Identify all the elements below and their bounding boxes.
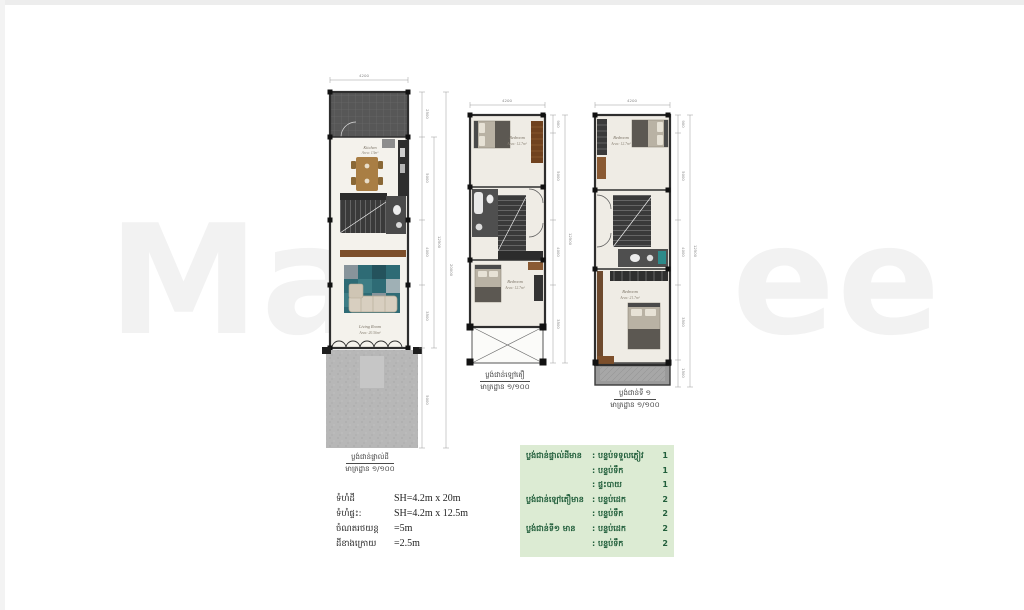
watermark-right: ee bbox=[732, 205, 942, 357]
room-summary-table: ប្លង់ជាន់ផ្ទាល់ដីមាន : បន្ទប់ទទួលភ្ញៀវ 1… bbox=[520, 445, 674, 557]
svg-text:4000: 4000 bbox=[556, 247, 561, 257]
svg-text:2500: 2500 bbox=[425, 109, 430, 119]
ground-floor-plan: 4200 Kitchen Area: 13m² bbox=[320, 60, 455, 490]
room-item: : បន្ទប់ដេក bbox=[592, 523, 658, 535]
svg-text:900: 900 bbox=[681, 120, 686, 128]
bed bbox=[474, 121, 510, 148]
room-count: 2 bbox=[658, 495, 668, 504]
svg-text:Bedroom: Bedroom bbox=[509, 135, 525, 140]
tv-console bbox=[340, 250, 406, 257]
svg-text:Bedroom: Bedroom bbox=[507, 279, 523, 284]
bathroom bbox=[618, 249, 668, 267]
table-row: : ផ្ទះបាយ 1 bbox=[526, 479, 668, 494]
svg-text:Living Room: Living Room bbox=[358, 324, 381, 329]
bed bbox=[475, 265, 501, 302]
svg-text:Area: 12.7m²: Area: 12.7m² bbox=[610, 142, 631, 146]
room-item: : ផ្ទះបាយ bbox=[592, 479, 658, 491]
table-row: ប្លង់ជាន់ទី១ មាន : បន្ទប់ដេក 2 bbox=[526, 523, 668, 538]
dimension-right bbox=[419, 92, 449, 448]
svg-text:Area: 13m²: Area: 13m² bbox=[361, 151, 380, 155]
under-stair-bathroom bbox=[386, 196, 406, 234]
room-item: : បន្ទប់ដេក bbox=[592, 494, 658, 506]
table-row: ប្លង់ជាន់ឡៅតឿមាន : បន្ទប់ដេក 2 bbox=[526, 494, 668, 509]
spec-value: SH=4.2m x 20m bbox=[394, 493, 460, 504]
svg-text:3500: 3500 bbox=[556, 319, 561, 329]
svg-text:20000: 20000 bbox=[449, 264, 454, 277]
dimension-top: 4200 bbox=[595, 98, 670, 108]
room-count: 1 bbox=[658, 466, 668, 475]
room-item: : បន្ទប់ទឹក bbox=[592, 465, 658, 477]
svg-text:5000: 5000 bbox=[425, 173, 430, 183]
table-row: ប្លង់ជាន់ផ្ទាល់ដីមាន : បន្ទប់ទទួលភ្ញៀវ 1 bbox=[526, 450, 668, 465]
table-row: : បន្ទប់ទឹក 2 bbox=[526, 538, 668, 553]
svg-text:1500: 1500 bbox=[681, 368, 686, 378]
room-item: : បន្ទប់ទឹក bbox=[592, 538, 658, 550]
svg-text:Bedroom: Bedroom bbox=[613, 135, 629, 140]
svg-text:Kitchen: Kitchen bbox=[362, 145, 376, 150]
dimensions-spec-block: ទំហំដី SH=4.2m x 20m ទំហំផ្ទះ: SH=4.2m x… bbox=[336, 493, 516, 553]
svg-text:Area: 12.7m²: Area: 12.7m² bbox=[506, 142, 527, 146]
cabinet bbox=[534, 275, 543, 301]
room-item: : បន្ទប់ទឹក bbox=[592, 508, 658, 520]
void-open-below bbox=[472, 327, 543, 363]
svg-text:12500: 12500 bbox=[437, 236, 442, 249]
dimension-top: 4200 bbox=[330, 73, 408, 83]
wardrobe bbox=[531, 121, 543, 163]
room-item: : បន្ទប់ទទួលភ្ញៀវ bbox=[592, 450, 658, 462]
svg-text:5000: 5000 bbox=[556, 171, 561, 181]
first-floor-caption: ប្លង់ជាន់ទី ១ មាត្រដ្ឋាន ១/១០០ bbox=[585, 389, 685, 411]
spec-label: ដីខាងក្រោយ bbox=[336, 539, 394, 551]
first-floor-plan: 4200 Bedroom Area: 12.7m² Bedroom Area: … bbox=[580, 95, 715, 430]
spec-label: ចំណតរថយន្ត bbox=[336, 524, 394, 536]
wardrobe bbox=[610, 271, 668, 281]
mezzanine-caption: ប្លង់ជាន់ឡៅតឿ មាត្រដ្ឋាន ១/១០០ bbox=[455, 371, 555, 393]
room-count: 2 bbox=[658, 524, 668, 533]
svg-text:4000: 4000 bbox=[425, 247, 430, 257]
table-row: : បន្ទប់ទឹក 2 bbox=[526, 508, 668, 523]
spec-label: ទំហំផ្ទះ: bbox=[336, 509, 394, 521]
accent-wall bbox=[597, 271, 603, 357]
dimension-top: 4200 bbox=[470, 98, 545, 108]
svg-text:4200: 4200 bbox=[627, 98, 637, 103]
table-row: : បន្ទប់ទឹក 1 bbox=[526, 465, 668, 480]
svg-text:Area: 21.7m²: Area: 21.7m² bbox=[619, 296, 640, 300]
spec-value: =5m bbox=[394, 523, 412, 534]
stairs bbox=[340, 200, 386, 233]
svg-text:4200: 4200 bbox=[502, 98, 512, 103]
svg-text:12500: 12500 bbox=[568, 233, 573, 246]
floor-label: ប្លង់ជាន់ផ្ទាល់ដីមាន bbox=[526, 450, 592, 462]
ground-floor-caption: ប្លង់ជាន់ផ្ទាល់ដី មាត្រដ្ឋាន ១/១០០ bbox=[320, 453, 420, 475]
svg-text:12500: 12500 bbox=[693, 245, 698, 258]
fridge bbox=[382, 139, 395, 148]
spec-value: SH=4.2m x 12.5m bbox=[394, 508, 468, 519]
svg-text:Area: 20.56m²: Area: 20.56m² bbox=[358, 331, 381, 335]
page-edge-left bbox=[0, 0, 5, 610]
spec-row-parking: ចំណតរថយន្ត =5m bbox=[336, 523, 516, 538]
stairs bbox=[613, 195, 651, 247]
svg-text:900: 900 bbox=[556, 120, 561, 128]
room-count: 1 bbox=[658, 480, 668, 489]
bed bbox=[628, 303, 660, 349]
bathroom bbox=[472, 189, 498, 237]
page-edge-top bbox=[0, 0, 1024, 5]
spec-row-land-size: ទំហំដី SH=4.2m x 20m bbox=[336, 493, 516, 508]
svg-text:Bedroom: Bedroom bbox=[622, 289, 638, 294]
cabinet bbox=[597, 157, 606, 179]
room-count: 1 bbox=[658, 451, 668, 460]
spec-label: ទំហំដី bbox=[336, 494, 394, 506]
svg-text:4200: 4200 bbox=[359, 73, 369, 78]
svg-text:Area: 12.7m²: Area: 12.7m² bbox=[504, 286, 525, 290]
floor-label: ប្លង់ជាន់ឡៅតឿមាន bbox=[526, 494, 592, 506]
svg-text:4000: 4000 bbox=[681, 247, 686, 257]
spec-row-house-size: ទំហំផ្ទះ: SH=4.2m x 12.5m bbox=[336, 508, 516, 523]
front-yard bbox=[322, 347, 422, 448]
room-count: 2 bbox=[658, 539, 668, 548]
svg-text:5000: 5000 bbox=[425, 395, 430, 405]
mezzanine-floor-plan: 4200 Bedroom Area: 12.7m² Bedroom Area: … bbox=[455, 95, 585, 405]
room-count: 2 bbox=[658, 509, 668, 518]
roof-terrace bbox=[330, 92, 408, 137]
floor-label: ប្លង់ជាន់ទី១ មាន bbox=[526, 523, 592, 535]
spec-row-backyard: ដីខាងក្រោយ =2.5m bbox=[336, 538, 516, 553]
desk bbox=[528, 262, 543, 270]
bed bbox=[632, 120, 668, 147]
svg-text:5000: 5000 bbox=[681, 171, 686, 181]
kitchen-counter bbox=[398, 140, 407, 196]
svg-text:3500: 3500 bbox=[425, 311, 430, 321]
svg-text:3500: 3500 bbox=[681, 317, 686, 327]
spec-value: =2.5m bbox=[394, 538, 420, 549]
